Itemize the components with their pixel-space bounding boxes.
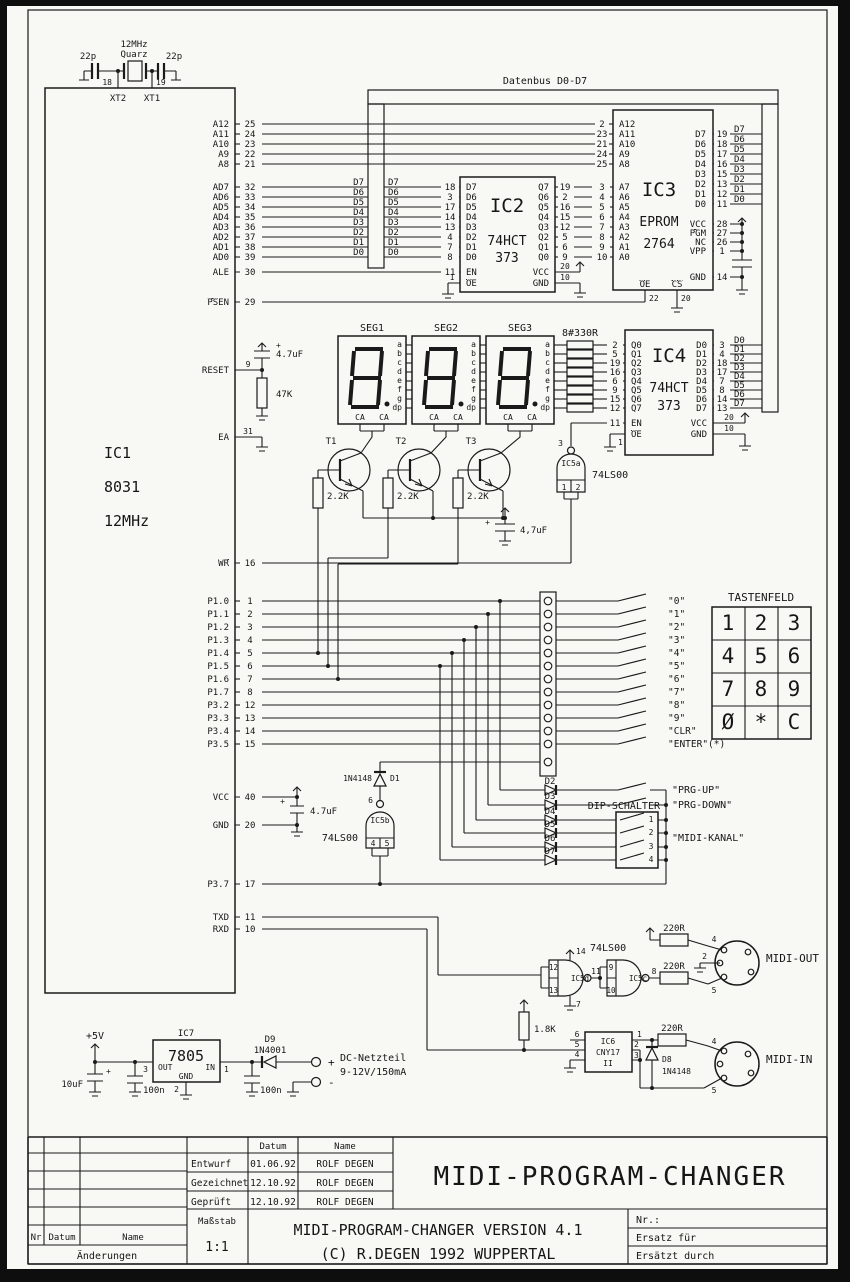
seg3-pin-labels-label: a [545, 340, 550, 349]
tb-name: Name [122, 1233, 144, 1243]
ic2-output-pins-label: Q2 [538, 233, 549, 243]
ic7-pin3: 3 [143, 1065, 148, 1074]
ic7-pin1: 1 [224, 1065, 229, 1074]
midi-in-label: MIDI-IN [766, 1053, 812, 1066]
seg1-dp-icon [385, 402, 390, 407]
ic1-port-pins-label: P3.4 [207, 727, 229, 737]
seg3-ca2: CA [527, 413, 537, 422]
tb-signoff-rows-label: 12.10.92 [250, 1178, 296, 1189]
ic3-addr-lower-pins-label: 6 [599, 213, 604, 223]
tb-nr-label: Nr.: [636, 1215, 660, 1226]
ic1-txd-label: TXD [213, 913, 229, 923]
ic3-addr-lower-pins-label: A7 [619, 183, 630, 193]
ic1-vcc-label: VCC [213, 793, 229, 803]
ic3-addr-upper-pins-label: 23 [597, 130, 608, 140]
ic1-ad-pins-label: 35 [245, 213, 256, 223]
ic1-ad-pins-label: D6 [353, 188, 364, 198]
tb-signoff-rows-label: 12.10.92 [250, 1197, 296, 1208]
ic3-oe-pin: 22 [649, 294, 659, 303]
keypad-keys-label: 9 [788, 677, 801, 701]
ic3-addr-lower-pins-label: 10 [597, 253, 608, 263]
ic3-addr-upper-pins-label: 2 [599, 120, 604, 130]
ic1-wr-pin: 16 [245, 559, 256, 569]
ic1-addr-pins-label: A10 [213, 140, 229, 150]
ic1-addr-pins-label: A12 [213, 120, 229, 130]
seg3-pin-labels-label: g [545, 394, 550, 403]
ic5c-in2-pin: 10 [606, 986, 616, 995]
ic7-gnd-label: GND [179, 1072, 194, 1081]
t3-label: T3 [466, 437, 477, 447]
ic2-input-pins-label: D7 [466, 183, 477, 193]
ic1-port-pins-label: P1.1 [207, 610, 229, 620]
ic1-port-pins-label: P1.7 [207, 688, 229, 698]
ic3-addr-lower-pins-label: 7 [599, 223, 604, 233]
ic3-addr-lower-pins-label: A4 [619, 213, 630, 223]
schematic-canvas: IC1 8031 12MHz 12MHz Quarz 22p 22p 18 19… [0, 0, 850, 1282]
key-function-labels-label: "ENTER"(*) [668, 739, 725, 750]
ic3-addr-upper-pins-label: A11 [619, 130, 635, 140]
ic3-addr-upper-pins-label: 25 [597, 160, 608, 170]
ic1-addr-pins-label: 23 [245, 140, 256, 150]
ic3-data-pins-label: D1 [734, 185, 745, 195]
ic5-family-label: 74LS00 [590, 943, 626, 954]
ic2-output-pins-label: 6 [562, 243, 567, 253]
tb-signoff-rows-label: ROLF DEGEN [316, 1197, 373, 1208]
ic6-pin5: 5 [575, 1040, 580, 1049]
ic3-data-pins-label: 16 [717, 160, 728, 170]
midi-in-r-label: 220R [661, 1024, 683, 1034]
seg3-title: SEG3 [508, 323, 532, 334]
databus-label: Datenbus D0-D7 [503, 76, 587, 87]
midi-in-pin5: 5 [712, 1086, 717, 1095]
tb-datum: Datum [48, 1233, 75, 1243]
emitter-cap-label: 4,7uF [520, 526, 547, 536]
seg1-pin-labels-label: e [397, 376, 402, 385]
ic3-addr-upper-pins-label: 21 [597, 140, 608, 150]
ic3-addr-upper-pins-label: A10 [619, 140, 635, 150]
ic3-addr-lower-pins-label: 8 [599, 233, 604, 243]
tb-ersetzt: Ersätzt durch [636, 1251, 714, 1262]
seg1-pin-labels-label: a [397, 340, 402, 349]
ic6-pin6: 6 [575, 1030, 580, 1039]
reset-cap-label: 4.7uF [276, 350, 303, 360]
ic5b-in1-pin: 4 [371, 839, 376, 848]
ic5d-out-pin: 11 [591, 967, 601, 976]
ic1-reset-label: RESET [202, 366, 230, 376]
ic4-d-pins-label: D7 [734, 399, 745, 409]
ic1-port-pins-label: 14 [245, 727, 256, 737]
ic3-addr-lower-pins-label: 4 [599, 193, 604, 203]
ic3-data-pins-label: 18 [717, 140, 728, 150]
ic2-family: 74HCT [487, 234, 526, 249]
keypad-keys-label: 6 [788, 644, 801, 668]
ic5c-in1-pin: 9 [609, 963, 614, 972]
ic3-data-pins-label: 12 [717, 190, 728, 200]
ic2-en-label: EN [466, 268, 477, 278]
xtal-freq: 12MHz [120, 40, 147, 50]
ic5c-name: IC5c [629, 974, 647, 983]
tb-main-title: MIDI-PROGRAM-CHANGER [433, 1162, 786, 1192]
ic2-output-pins-label: Q1 [538, 243, 549, 253]
ic7-in-label: IN [205, 1063, 215, 1072]
ic2-output-pins-label: 16 [560, 203, 571, 213]
svg-text:14: 14 [717, 273, 728, 283]
ic1-ad-pins-label: D7 [353, 178, 364, 188]
ic1-addr-pins-label: A11 [213, 130, 229, 140]
scanned-schematic-page: IC1 8031 12MHz 12MHz Quarz 22p 22p 18 19… [0, 0, 850, 1282]
tb-subtitle2: (C) R.DEGEN 1992 WUPPERTAL [321, 1245, 556, 1263]
seg3-pin-labels-label: f [545, 385, 550, 394]
ic1-port-pins-label: P3.2 [207, 701, 229, 711]
ic1-ad-pins-label: D7 [388, 178, 399, 188]
ic6-part: CNY17 [596, 1048, 620, 1057]
ic1-p37-label: P3.7 [207, 880, 229, 890]
d8-part: 1N4148 [662, 1067, 691, 1076]
reset-res-label: 47K [276, 390, 293, 400]
ic1-port-pins-label: 12 [245, 701, 256, 711]
tb-signoff-rows-label: 01.06.92 [250, 1159, 296, 1170]
seg2-ca2: CA [453, 413, 463, 422]
keypad-keys-label: 5 [755, 644, 768, 668]
ic1-ad-pins-label: D5 [353, 198, 364, 208]
ic2-part: 373 [495, 251, 518, 266]
ic1-ad-pins-label: D3 [353, 218, 364, 228]
svg-text:VPP: VPP [690, 247, 707, 257]
ic3-data-pins-label: D1 [695, 190, 706, 200]
ic1-port-pins-label: P3.5 [207, 740, 229, 750]
ic1-clock: 12MHz [104, 512, 149, 530]
ic2-input-pins-label: 3 [447, 193, 452, 203]
ic1-addr-pins-label: 24 [245, 130, 256, 140]
seg1-pin-labels-label: f [397, 385, 402, 394]
ic2-oe-pin: 1 [450, 273, 455, 282]
ic2-input-pins-label: 14 [445, 213, 456, 223]
ic3-addr-lower-pins-label: A2 [619, 233, 630, 243]
ic2-output-pins-label: Q0 [538, 253, 549, 263]
seg1-ca2: CA [379, 413, 389, 422]
ic2-input-pins-label: 18 [445, 183, 456, 193]
dc-plus-mark: + [328, 1056, 335, 1069]
ic1-addr-pins-label: A8 [218, 160, 229, 170]
ic3-name: IC3 [642, 179, 676, 201]
cap-plus-mark: + [485, 518, 490, 527]
ic3-data-pins-label: D7 [695, 130, 706, 140]
tb-nr: Nr [31, 1233, 42, 1243]
ic1-ad-pins-label: D4 [388, 208, 399, 218]
key-function-labels-label: "2" [668, 622, 685, 633]
ic3-data-pins-label: D3 [734, 165, 745, 175]
ic3-data-pins-label: D2 [695, 180, 706, 190]
ic1-ad-pins-label: AD2 [213, 233, 229, 243]
ic3-addr-upper-pins-label: A8 [619, 160, 630, 170]
ic3-addr-lower-pins-label: 5 [599, 203, 604, 213]
ic4-gnd-pin: 10 [724, 424, 734, 433]
ic1-part: 8031 [104, 478, 140, 496]
seg1-pin-labels-label: d [397, 367, 402, 376]
tb-name-col: Name [334, 1142, 356, 1152]
ic4-gnd-label: GND [691, 430, 707, 440]
keypad-keys-label: 7 [722, 677, 735, 701]
ic2-oe-label: OE [466, 279, 477, 289]
midi-kanal-label: "MIDI-KANAL" [672, 833, 744, 844]
ic2-input-pins-label: 13 [445, 223, 456, 233]
keypad-keys-label: 8 [755, 677, 768, 701]
ic5a-name: IC5a [561, 459, 580, 468]
dip-switch-numbers-label: 2 [649, 828, 654, 837]
dc-supply-line1: DC-Netzteil [340, 1053, 406, 1064]
keypad-keys-label: 1 [722, 611, 735, 635]
keypad-keys-label: 3 [788, 611, 801, 635]
seg3-dp-icon [533, 402, 538, 407]
ic1-ad-pins-label: AD6 [213, 193, 229, 203]
key-function-labels-label: "CLR" [668, 726, 697, 737]
ic5a-out-pin: 3 [558, 439, 563, 448]
ic2-output-pins-label: 2 [562, 193, 567, 203]
prg-up-label: "PRG-UP" [672, 785, 720, 796]
ic5d-gnd-pin: 7 [576, 1000, 581, 1009]
ic5c-out-pin: 8 [652, 967, 657, 976]
ic1-ad-pins-label: AD1 [213, 243, 229, 253]
tb-signoff-rows-label: Entwurf [191, 1159, 231, 1170]
ic3-data-pins-label: 13 [717, 180, 728, 190]
ic6-pin3: 3 [634, 1051, 639, 1060]
ic2-output-pins-label: Q6 [538, 193, 549, 203]
ic5d-in2-pin: 13 [549, 986, 558, 995]
ic3-cs-pin: 20 [681, 294, 691, 303]
ic5d-name: IC5d [571, 974, 589, 983]
ic1-vcc-pin: 40 [245, 793, 256, 803]
ic1-addr-pins-label: 22 [245, 150, 256, 160]
ic5a-in2-pin: 2 [576, 483, 581, 492]
ic4-q-pins-label: 12 [610, 404, 621, 414]
ic2-vcc-label: VCC [533, 268, 549, 278]
t1-base-resistor: 2.2K [327, 492, 349, 502]
seg2-pin-labels-label: a [471, 340, 476, 349]
dc-minus-mark: - [328, 1076, 335, 1089]
ic6-pin1: 1 [637, 1030, 642, 1039]
ic4-en-label: EN [631, 419, 642, 429]
ic3-cs-label: CS [672, 280, 683, 290]
tb-datum-col: Datum [259, 1142, 286, 1152]
ic1-port-pins-label: 5 [247, 649, 252, 659]
ic1-port-pins-label: P1.3 [207, 636, 229, 646]
ic1-addr-pins-label: 25 [245, 120, 256, 130]
ic3-oe-label: OE [640, 280, 651, 290]
svg-text:1: 1 [719, 247, 724, 257]
ic2-output-pins-label: 12 [560, 223, 571, 233]
seg2-pin-labels-label: b [471, 349, 476, 358]
ic2-output-pins-label: Q3 [538, 223, 549, 233]
ic1-ad-pins-label: D0 [388, 248, 399, 258]
t2-base-resistor: 2.2K [397, 492, 419, 502]
in-cap-label: 100n [260, 1086, 282, 1096]
seg1-title: SEG1 [360, 323, 384, 334]
ic5b-in2-pin: 5 [385, 839, 390, 848]
ic4-d-pins-label: D7 [696, 404, 707, 414]
ic5a-in1-pin: 1 [562, 483, 567, 492]
ic2-input-pins-label: 8 [447, 253, 452, 263]
ic1-ad-pins-label: 34 [245, 203, 256, 213]
ic3-data-pins-label: D4 [734, 155, 745, 165]
key-function-labels-label: "4" [668, 648, 685, 659]
keypad-keys-label: * [755, 710, 768, 734]
seg2-pin-labels-label: c [471, 358, 476, 367]
seg2-pin-labels-label: d [471, 367, 476, 376]
ic3-addr-lower-pins-label: 9 [599, 243, 604, 253]
ic4-oe-pin: 1 [618, 438, 623, 447]
ic4-vcc-pin: 20 [724, 413, 734, 422]
ic1-ad-pins-label: D2 [353, 228, 364, 238]
ic1-ale-pin: 30 [245, 268, 256, 278]
tb-subtitle1: MIDI-PROGRAM-CHANGER VERSION 4.1 [294, 1221, 583, 1239]
ic3-data-pins-label: 11 [717, 200, 728, 210]
ic1-ad-pins-label: AD7 [213, 183, 229, 193]
ic1-ad-pins-label: AD3 [213, 223, 229, 233]
prg-down-label: "PRG-DOWN" [672, 800, 732, 811]
ic1-p37-pin: 17 [245, 880, 256, 890]
ic5b-out-pin: 6 [368, 796, 373, 805]
key-function-labels-label: "5" [668, 661, 685, 672]
seg3-pin-labels-label: b [545, 349, 550, 358]
seg2-pin-labels-label: dp [466, 403, 476, 412]
ic5d-in1-pin: 12 [549, 963, 558, 972]
seg2-ca1: CA [429, 413, 439, 422]
pin-18: 18 [102, 78, 112, 87]
dip-switch-numbers-label: 3 [649, 842, 654, 851]
v5-label: +5V [86, 1031, 104, 1042]
ic3-part: 2764 [643, 237, 674, 252]
seg1-pin-labels-label: dp [392, 403, 402, 412]
midi-out-label: MIDI-OUT [766, 952, 819, 965]
ic2-input-pins-label: D2 [466, 233, 477, 243]
ic1-port-pins-label: 13 [245, 714, 256, 724]
ic1-ad-pins-label: AD0 [213, 253, 229, 263]
ic7-out-label: OUT [158, 1063, 173, 1072]
ic4-q-pins-label: Q7 [631, 404, 642, 414]
ic1-port-pins-label: P3.3 [207, 714, 229, 724]
cap-c2: 22p [166, 52, 182, 62]
seg2-dp-icon [459, 402, 464, 407]
ic1-ea-pin: 31 [243, 427, 253, 436]
ic4-en-pin: 11 [610, 419, 621, 429]
ic1-ad-pins-label: D2 [388, 228, 399, 238]
ic1-ad-pins-label: 36 [245, 223, 256, 233]
seg1-ca1: CA [355, 413, 365, 422]
ic1-ad-pins-label: AD5 [213, 203, 229, 213]
ic2-input-pins-label: D0 [466, 253, 477, 263]
ic2-vcc-pin: 20 [560, 262, 570, 271]
seg1-pin-labels-label: c [397, 358, 402, 367]
ic6-name: IC6 [601, 1037, 616, 1046]
ic5d-vcc-pin: 14 [576, 947, 586, 956]
ic5b-name: IC5b [370, 816, 389, 825]
ic1-wr-label: WR [218, 559, 229, 569]
ic4-vcc-label: VCC [691, 419, 707, 429]
key-function-labels-label: "9" [668, 713, 685, 724]
d8-name: D8 [662, 1055, 672, 1064]
xt1-label: XT1 [144, 94, 160, 104]
dip-switch-numbers-label: 4 [649, 855, 654, 864]
ic1-psen-pin: 29 [245, 298, 256, 308]
ic6-pin4: 4 [575, 1050, 580, 1059]
ic3-data-pins-label: D6 [734, 135, 745, 145]
ic1-ad-pins-label: D4 [353, 208, 364, 218]
keypad-keys-label: 4 [722, 644, 735, 668]
midi-out-r2-label: 220R [663, 962, 685, 972]
dip-switch-numbers-label: 1 [649, 815, 654, 824]
ic1-ad-pins-label: 32 [245, 183, 256, 193]
ic1-ea-label: EA [218, 433, 229, 443]
ic1-port-pins-label: 15 [245, 740, 256, 750]
keypad-keys-label: 2 [755, 611, 768, 635]
t1-label: T1 [326, 437, 337, 447]
out-cap-label: 100n [143, 1086, 165, 1096]
ic1-ad-pins-label: D1 [353, 238, 364, 248]
tb-signoff-rows-label: ROLF DEGEN [316, 1178, 373, 1189]
ic3-data-pins-label: D5 [734, 145, 745, 155]
ic1-gnd-pin: 20 [245, 821, 256, 831]
d9-name: D9 [265, 1035, 276, 1045]
ic4-name: IC4 [652, 345, 686, 367]
ic6-pin2: 2 [634, 1040, 639, 1049]
ic1-port-pins-label: P1.2 [207, 623, 229, 633]
ic1-ad-pins-label: D3 [388, 218, 399, 228]
seg3-pin-labels-label: c [545, 358, 550, 367]
ic2-output-pins-label: 19 [560, 183, 571, 193]
ic3-data-pins-label: 17 [717, 150, 728, 160]
ic1-port-pins-label: P1.6 [207, 675, 229, 685]
ic3-data-pins-label: D6 [695, 140, 706, 150]
ic1-port-pins-label: 2 [247, 610, 252, 620]
key-function-labels-label: "3" [668, 635, 685, 646]
tb-ersatz: Ersatz für [636, 1233, 696, 1244]
ic7-part: 7805 [168, 1047, 204, 1065]
seg3-pin-labels-label: dp [540, 403, 550, 412]
seg1-pin-labels-label: b [397, 349, 402, 358]
ic3-addr-lower-pins-label: A6 [619, 193, 630, 203]
ic5a-family: 74LS00 [592, 470, 628, 481]
keypad-keys-label: Ø [722, 710, 735, 734]
ic3-addr-lower-pins-label: A0 [619, 253, 630, 263]
t3-base-resistor: 2.2K [467, 492, 489, 502]
ic1-port-pins-label: 1 [247, 597, 252, 607]
ic7-pin2: 2 [174, 1085, 179, 1094]
ic2-name: IC2 [490, 195, 524, 217]
vcc-cap-label: 4.7uF [310, 807, 337, 817]
d1-part: 1N4148 [343, 774, 372, 783]
ic2-input-pins-label: D5 [466, 203, 477, 213]
ic2-input-pins-label: 7 [447, 243, 452, 253]
ic1-psen-label: PSEN [207, 298, 229, 308]
seg2-pin-labels-label: e [471, 376, 476, 385]
seg1-pin-labels-label: g [397, 394, 402, 403]
d9-part: 1N4001 [254, 1046, 287, 1056]
midi-out-r1-label: 220R [663, 924, 685, 934]
seg2-pin-labels-label: f [471, 385, 476, 394]
ic1-ad-pins-label: AD4 [213, 213, 229, 223]
cap-c1: 22p [80, 52, 96, 62]
tb-signoff-rows-label: Geprüft [191, 1197, 231, 1208]
ic1-ad-pins-label: D5 [388, 198, 399, 208]
midi-in-pin4: 4 [712, 1037, 717, 1046]
tb-signoff-rows: Entwurf01.06.92ROLF DEGENGezeichnet12.10… [191, 1159, 374, 1208]
ic2-input-pins-label: D4 [466, 213, 477, 223]
seg3-pin-labels-label: e [545, 376, 550, 385]
ic2-output-pins-label: Q5 [538, 203, 549, 213]
key-function-labels-label: "8" [668, 700, 685, 711]
ic3-addr-upper-pins-label: A9 [619, 150, 630, 160]
ic1-txd-pin: 11 [245, 913, 256, 923]
